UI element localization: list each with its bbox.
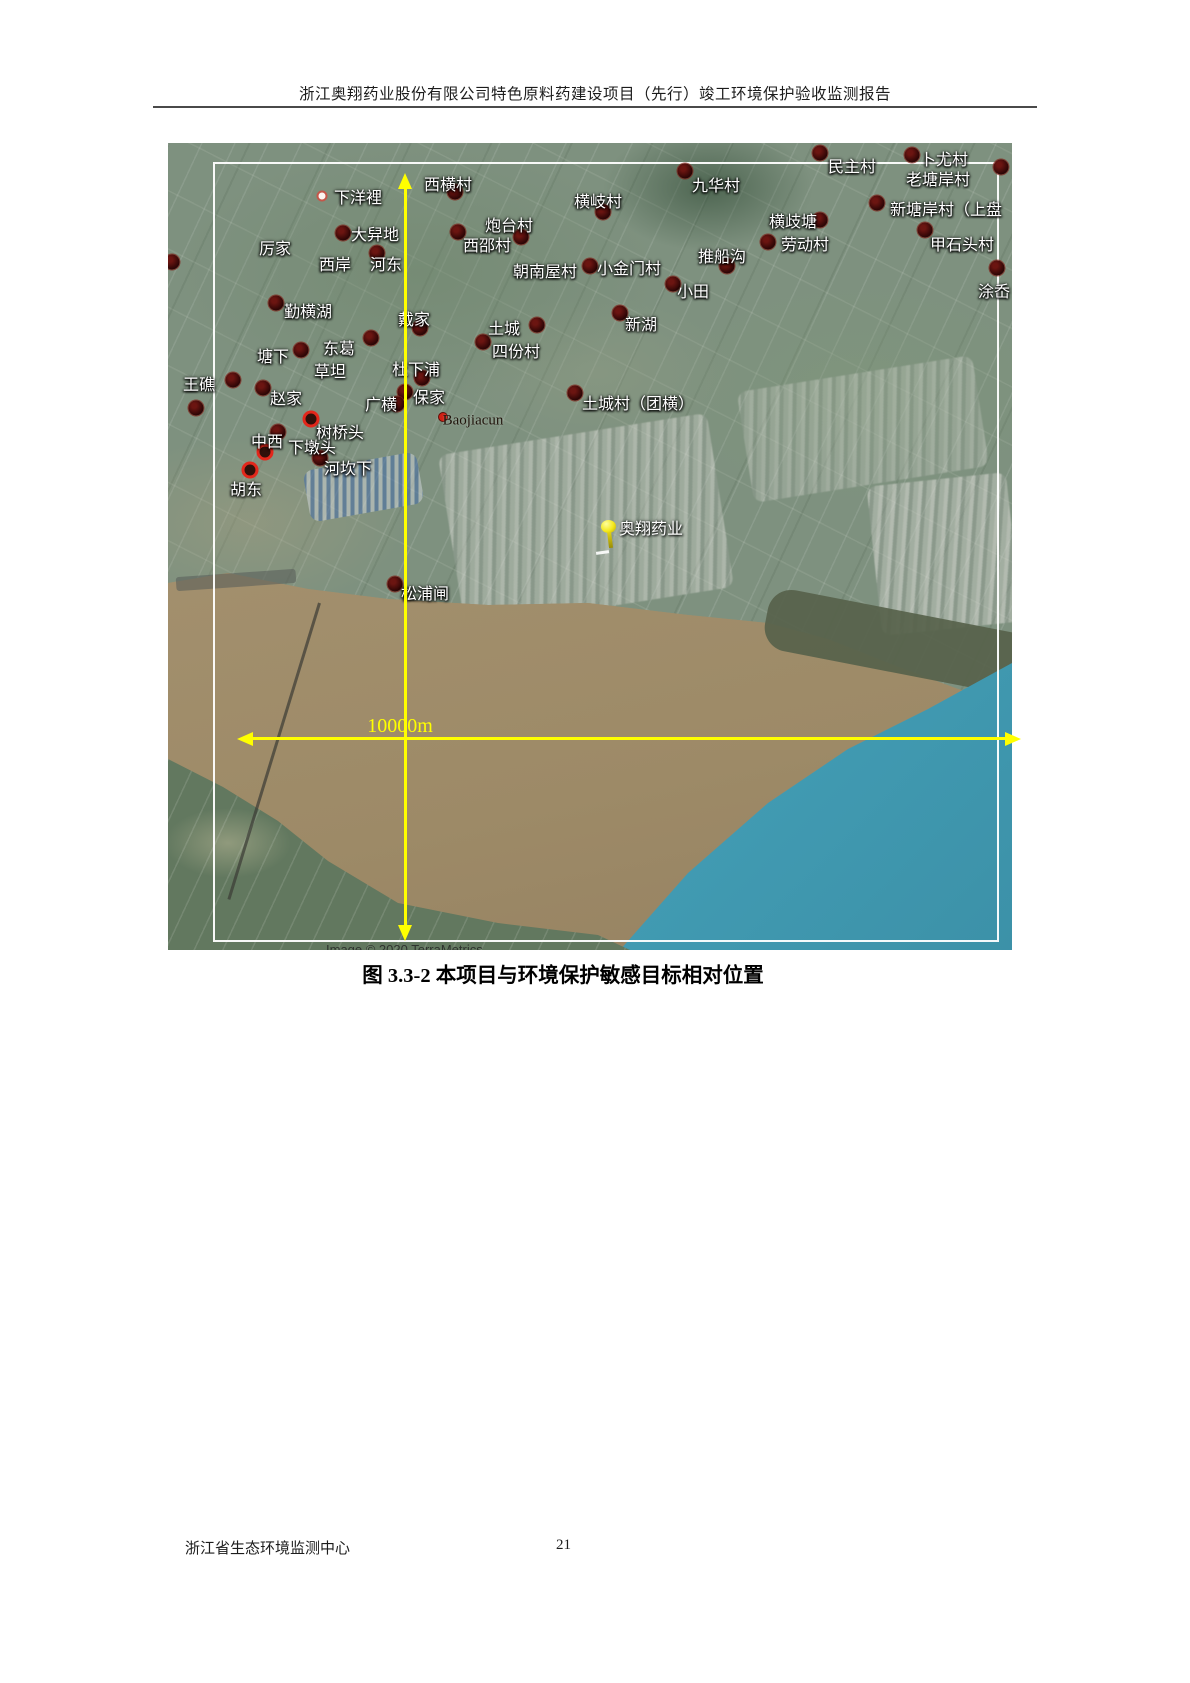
map-place-label: 劳动村	[781, 231, 829, 255]
map-place-label: 横岐村	[574, 188, 622, 212]
header-rule	[153, 106, 1037, 108]
map-place-label: 新塘岸村（上盘	[890, 196, 1002, 220]
map-place-label: 西邵村	[463, 232, 511, 256]
arrow-up-icon	[398, 173, 412, 189]
map-place-label: 杜下浦	[392, 356, 440, 380]
map-place-label: 横歧塘	[769, 208, 817, 232]
map-place-label: 塘下	[257, 343, 289, 367]
map-place-label: 赵家	[270, 385, 302, 409]
map-place-label: 老塘岸村	[906, 166, 970, 190]
map-place-label: Baojiacun	[443, 413, 504, 430]
map-place-label: 戴家	[398, 306, 430, 330]
vertical-scale-line	[404, 187, 407, 927]
map-place-label: 广横	[365, 391, 397, 415]
map-place-label: 河东	[370, 251, 402, 275]
map-place-label: 西横村	[424, 171, 472, 195]
map-place-label: 朝南屋村	[513, 258, 577, 282]
map-place-label: 小金门村	[597, 255, 661, 279]
footer-organization: 浙江省生态环境监测中心	[185, 1537, 350, 1558]
map-place-label: 甲石头村	[930, 231, 994, 255]
map-terrain: 下洋裡西横村厉家大舁地西岸河东炮台村西邵村朝南屋村横岐村九华村民主村卜尤村老塘岸…	[168, 143, 1012, 950]
map-place-label: 土城村（团横）	[582, 390, 694, 414]
horizontal-scale-line	[252, 737, 1006, 740]
map-place-label: 胡东	[230, 476, 262, 500]
map-place-label: 西岸	[319, 251, 351, 275]
arrow-right-icon	[1005, 732, 1021, 746]
map-place-label: 王礁	[183, 371, 215, 395]
map-place-label: 河坎下	[324, 455, 372, 479]
map-place-label: 东葛	[323, 335, 355, 359]
map-place-label: 四份村	[492, 338, 540, 362]
satellite-map: 下洋裡西横村厉家大舁地西岸河东炮台村西邵村朝南屋村横岐村九华村民主村卜尤村老塘岸…	[168, 143, 1012, 950]
footer-page-number: 21	[556, 1537, 571, 1554]
map-place-label: 厉家	[259, 235, 291, 259]
project-site-label: 奥翔药业	[619, 515, 683, 539]
report-page: 浙江奥翔药业股份有限公司特色原料药建设项目（先行）竣工环境保护验收监测报告 下洋…	[0, 0, 1190, 1683]
arrow-down-icon	[398, 925, 412, 941]
scale-distance-label: 10000m	[350, 715, 450, 738]
map-place-label: 小田	[677, 278, 709, 302]
map-place-label: 新湖	[625, 311, 657, 335]
project-pushpin-icon	[601, 520, 616, 533]
map-place-label: 推船沟	[698, 243, 746, 267]
map-place-label: 树桥头	[316, 419, 364, 443]
map-place-label: 九华村	[692, 172, 740, 196]
imagery-copyright: Image © 2020 TerraMetrics	[326, 942, 646, 950]
map-place-label: 勤横湖	[284, 298, 332, 322]
page-header-title: 浙江奥翔药业股份有限公司特色原料药建设项目（先行）竣工环境保护验收监测报告	[0, 82, 1190, 104]
map-place-label: 涂岙	[978, 278, 1010, 302]
map-labels-layer: 下洋裡西横村厉家大舁地西岸河东炮台村西邵村朝南屋村横岐村九华村民主村卜尤村老塘岸…	[168, 143, 1012, 950]
figure-caption: 图 3.3-2 本项目与环境保护敏感目标相对位置	[168, 958, 958, 988]
map-place-label: 民主村	[828, 153, 876, 177]
map-place-label: 下洋裡	[334, 184, 382, 208]
arrow-left-icon	[237, 732, 253, 746]
map-place-label: 松浦闸	[401, 580, 449, 604]
map-place-label: 大舁地	[351, 221, 399, 245]
map-place-label: 中西	[251, 428, 283, 452]
map-place-label: 草坦	[314, 358, 346, 382]
map-place-label: 保家	[413, 384, 445, 408]
map-place-label: 土城	[488, 315, 520, 339]
